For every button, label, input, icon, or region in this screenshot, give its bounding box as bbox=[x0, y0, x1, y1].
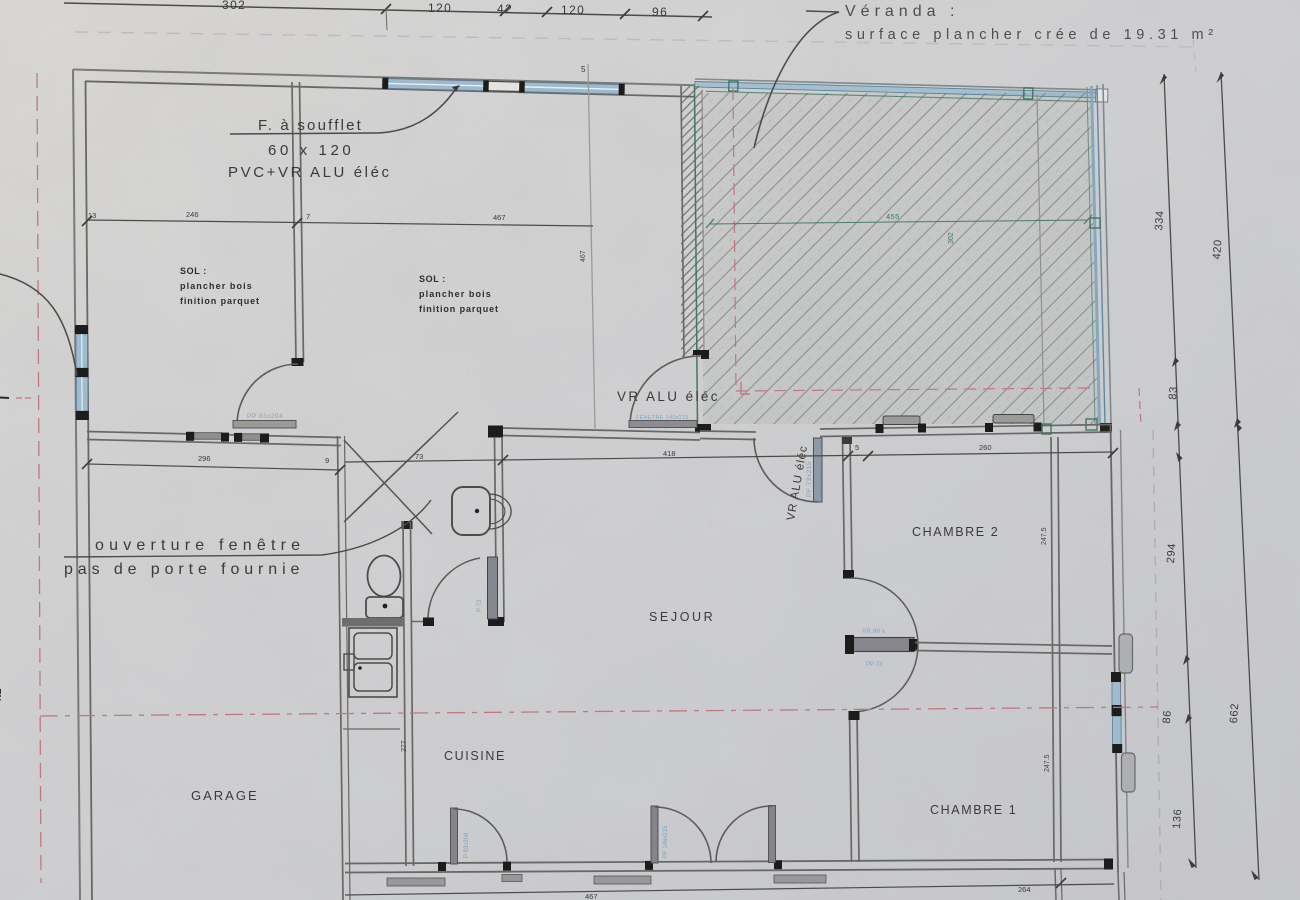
svg-text:F. à soufflet: F. à soufflet bbox=[258, 117, 363, 134]
svg-text:86: 86 bbox=[1161, 710, 1174, 724]
svg-text:GARAGE: GARAGE bbox=[191, 788, 259, 803]
svg-text:73: 73 bbox=[415, 452, 423, 461]
svg-text:247.5: 247.5 bbox=[1044, 754, 1051, 772]
svg-text:334: 334 bbox=[1153, 210, 1166, 231]
svg-text:247.5: 247.5 bbox=[1041, 527, 1048, 545]
svg-text:plancher bois: plancher bois bbox=[419, 289, 492, 299]
svg-text:294: 294 bbox=[1165, 543, 1178, 564]
svg-text:302: 302 bbox=[948, 232, 955, 244]
svg-text:SOL :: SOL : bbox=[180, 266, 207, 276]
svg-text:CHAMBRE 2: CHAMBRE 2 bbox=[912, 525, 999, 539]
svg-text:VR 90 x: VR 90 x bbox=[862, 628, 886, 635]
svg-text:pas de porte fournie: pas de porte fournie bbox=[64, 561, 304, 578]
svg-text:277: 277 bbox=[401, 740, 408, 752]
svg-text:418: 418 bbox=[663, 449, 676, 458]
svg-text:83: 83 bbox=[1167, 386, 1180, 400]
svg-text:136: 136 bbox=[1171, 808, 1184, 829]
svg-text:60 x 120: 60 x 120 bbox=[268, 142, 354, 159]
svg-text:ouverture fenêtre: ouverture fenêtre bbox=[95, 537, 305, 554]
svg-text:finition parquet: finition parquet bbox=[419, 304, 499, 314]
svg-text:120: 120 bbox=[561, 3, 585, 17]
svg-text:467: 467 bbox=[585, 892, 598, 900]
svg-text:120: 120 bbox=[428, 1, 452, 15]
svg-text:PP 83x204: PP 83x204 bbox=[247, 413, 283, 420]
svg-text:NE: NE bbox=[0, 688, 3, 701]
svg-text:PF 146x215: PF 146x215 bbox=[663, 825, 669, 858]
svg-text:9: 9 bbox=[325, 456, 329, 465]
svg-text:surface plancher crée de 19.31: surface plancher crée de 19.31 m² bbox=[845, 27, 1218, 43]
svg-text:plancher bois: plancher bois bbox=[180, 281, 253, 291]
svg-text:96: 96 bbox=[652, 5, 668, 19]
svg-text:CHAMBRE 1: CHAMBRE 1 bbox=[930, 803, 1017, 817]
svg-text:FENETRE 140x215: FENETRE 140x215 bbox=[636, 415, 689, 421]
svg-text:CUISINE: CUISINE bbox=[444, 749, 506, 763]
svg-text:5: 5 bbox=[581, 65, 586, 74]
svg-text:13: 13 bbox=[88, 211, 96, 220]
svg-text:246: 246 bbox=[186, 210, 199, 219]
svg-text:420: 420 bbox=[1211, 239, 1224, 260]
svg-text:SEJOUR: SEJOUR bbox=[649, 610, 715, 624]
svg-text:PF 73x215: PF 73x215 bbox=[806, 461, 813, 497]
svg-text:P 83x204: P 83x204 bbox=[464, 832, 470, 858]
svg-text:7: 7 bbox=[306, 212, 310, 221]
svg-text:296: 296 bbox=[198, 454, 211, 463]
svg-text:P 73: P 73 bbox=[477, 599, 483, 612]
svg-text:finition parquet: finition parquet bbox=[180, 296, 260, 306]
svg-text:260: 260 bbox=[979, 443, 992, 452]
svg-text:42: 42 bbox=[497, 2, 513, 16]
svg-text:SOL :: SOL : bbox=[419, 274, 446, 284]
svg-text:VR ALU éléc: VR ALU éléc bbox=[617, 389, 720, 404]
svg-text:264: 264 bbox=[1018, 885, 1031, 894]
svg-text:PVC+VR ALU éléc: PVC+VR ALU éléc bbox=[228, 164, 392, 181]
svg-text:302: 302 bbox=[222, 0, 246, 12]
svg-text:467: 467 bbox=[580, 250, 587, 262]
svg-text:PP 73: PP 73 bbox=[866, 662, 883, 668]
svg-text:467: 467 bbox=[493, 213, 506, 222]
svg-text:5: 5 bbox=[855, 443, 859, 452]
svg-text:662: 662 bbox=[1228, 703, 1241, 724]
svg-text:455: 455 bbox=[886, 212, 900, 221]
svg-text:Véranda :: Véranda : bbox=[845, 3, 959, 20]
